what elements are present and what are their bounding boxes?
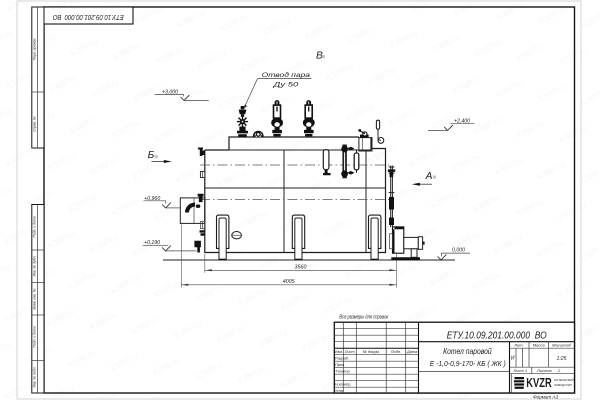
svg-text:КОТЕЛЬНЫЙ: КОТЕЛЬНЫЙ bbox=[554, 378, 574, 382]
svg-text:Инв. № подл.: Инв. № подл. bbox=[32, 366, 36, 387]
svg-text:Котел паровой: Котел паровой bbox=[443, 347, 492, 356]
svg-text:Утв.: Утв. bbox=[335, 388, 344, 393]
svg-text:Изм.: Изм. bbox=[335, 349, 343, 354]
svg-text:Отвод пара: Отвод пара bbox=[262, 71, 311, 79]
svg-text:Взам. инв. №: Взам. инв. № bbox=[32, 288, 36, 309]
svg-text:1:25: 1:25 bbox=[556, 356, 566, 362]
svg-text:А: А bbox=[425, 171, 433, 182]
svg-text:Т.контр.: Т.контр. bbox=[335, 368, 351, 373]
svg-text:Масштаб: Масштаб bbox=[552, 343, 571, 348]
svg-text:Лист: Лист bbox=[513, 368, 525, 373]
svg-text:Справ. №: Справ. № bbox=[32, 116, 36, 132]
svg-text:ЕТУ.10.09.201.00.000 ВО: ЕТУ.10.09.201.00.000 ВО bbox=[447, 330, 547, 341]
svg-text:Н.контр.: Н.контр. bbox=[335, 381, 351, 386]
svg-text:3560: 3560 bbox=[295, 264, 307, 270]
svg-text:№ докум.: № докум. bbox=[363, 349, 380, 354]
svg-text:Формат А3: Формат А3 bbox=[533, 394, 559, 399]
svg-text:Листов: Листов bbox=[536, 368, 552, 373]
svg-text:Ду 50: Ду 50 bbox=[272, 82, 298, 89]
svg-text:Подп. и дата: Подп. и дата bbox=[32, 216, 36, 237]
svg-text:Все размеры для справок: Все размеры для справок bbox=[339, 314, 389, 320]
svg-text:Подп.: Подп. bbox=[391, 349, 401, 354]
svg-text:Разраб.: Разраб. bbox=[335, 355, 349, 360]
svg-text:Инв. № дубл.: Инв. № дубл. bbox=[32, 256, 36, 277]
svg-text:Масса: Масса bbox=[533, 343, 546, 348]
svg-text:Б: Б bbox=[148, 150, 155, 161]
svg-text:Лит.: Лит. bbox=[513, 343, 523, 348]
svg-text:Лист: Лист bbox=[344, 349, 356, 354]
svg-text:Дата: Дата bbox=[406, 349, 418, 354]
svg-text:0,000: 0,000 bbox=[452, 247, 465, 253]
svg-text:Е -1,0-0,9-170- КБ ( ЖК ): Е -1,0-0,9-170- КБ ( ЖК ) bbox=[430, 359, 506, 368]
svg-text:Перв. примен.: Перв. примен. bbox=[32, 38, 36, 61]
svg-text:Подп. и дата: Подп. и дата bbox=[32, 326, 36, 347]
svg-text:ЗАВОД РЭП: ЗАВОД РЭП bbox=[554, 383, 573, 387]
svg-text:Пров.: Пров. bbox=[335, 362, 345, 367]
svg-text:И: И bbox=[511, 356, 515, 362]
svg-text:ЕТУ.10.09.201.00.000 ВО: ЕТУ.10.09.201.00.000 ВО bbox=[53, 13, 124, 22]
svg-text:1: 1 bbox=[525, 368, 527, 373]
svg-text:KVZR: KVZR bbox=[526, 376, 552, 390]
svg-text:4005: 4005 bbox=[283, 279, 296, 285]
